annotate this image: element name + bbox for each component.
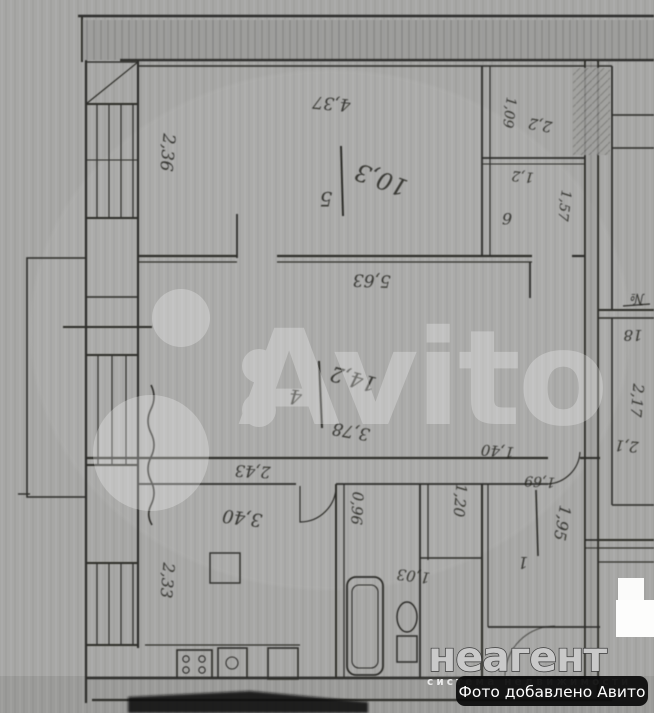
- caption-text: Фото добавлено Авито: [459, 683, 646, 701]
- dim-2-33: 2,33: [156, 561, 178, 599]
- dim-2-17: 2,17: [627, 382, 648, 418]
- dim-1-69: 1,69: [524, 472, 556, 490]
- dim-1-2: 1,2: [511, 167, 535, 185]
- room1-number: 1: [518, 553, 528, 572]
- apartment-number: 18: [623, 326, 642, 344]
- dim-2-36: 2,36: [155, 132, 178, 173]
- dim-4-37: 4,37: [312, 91, 353, 114]
- neagent-logo: неагент: [428, 633, 607, 681]
- white-patch-large: [616, 600, 654, 637]
- floorplan-canvas: 2,36 4,37 5 10,3 5,63 4 14,2 3,78 2,43 3…: [0, 0, 654, 713]
- dim-2-1: 2,1: [614, 436, 640, 456]
- vent-shaft-hatch: [573, 68, 610, 155]
- wall-top-hatch: [82, 20, 654, 60]
- dim-1-20: 1,20: [450, 483, 471, 518]
- apartment-no-sign: №: [630, 290, 645, 308]
- dim-2-43: 2,43: [234, 461, 272, 482]
- room6-number: 6: [502, 209, 512, 228]
- dim-5-63: 5,63: [353, 269, 392, 290]
- floorplan-photo: 2,36 4,37 5 10,3 5,63 4 14,2 3,78 2,43 3…: [0, 0, 654, 713]
- avito-wordmark: Avito: [238, 302, 606, 456]
- dim-0-96: 0,96: [347, 491, 367, 526]
- room5-number: 5: [320, 187, 333, 211]
